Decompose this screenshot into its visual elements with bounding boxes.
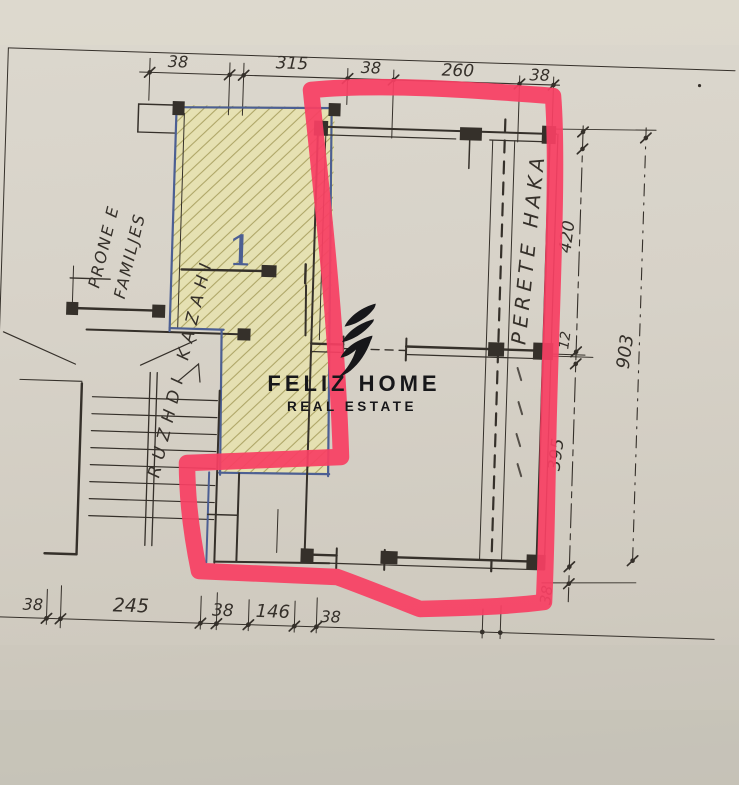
scanned-floor-plan-photo: 38 315 38 260 38 (0, 0, 739, 785)
dim-label-right-903: 903 (613, 333, 638, 370)
paper-top-light-band (0, 0, 739, 45)
dim-label-top-38-mid: 38 (360, 58, 381, 78)
dimension-tick-dots-right (566, 130, 648, 588)
dim-label-bottom-38-right: 38 (320, 607, 341, 627)
logo-name: FELIZ HOME (267, 371, 440, 396)
dim-label-bottom-38-mid: 38 (212, 601, 234, 622)
dim-label-bottom-146: 146 (255, 601, 290, 623)
dim-label-top-38-right: 38 (529, 65, 550, 85)
note-hidden-letter-fragments (514, 368, 524, 476)
dim-label-top-38-left: 38 (168, 52, 189, 72)
dim-label-bottom-245: 245 (112, 594, 149, 617)
door-swing-line (3, 332, 77, 364)
dim-label-top-315: 315 (275, 53, 308, 74)
dim-label-bottom-38-left: 38 (22, 595, 43, 615)
dimension-ticks-right (564, 127, 651, 591)
paper-bottom-shade-2 (0, 710, 739, 785)
floor-plan-svg: 38 315 38 260 38 (0, 0, 739, 785)
dim-label-top-260: 260 (441, 60, 474, 81)
logo-tagline: REAL ESTATE (287, 399, 417, 414)
room-number-label: 1 (227, 226, 255, 276)
